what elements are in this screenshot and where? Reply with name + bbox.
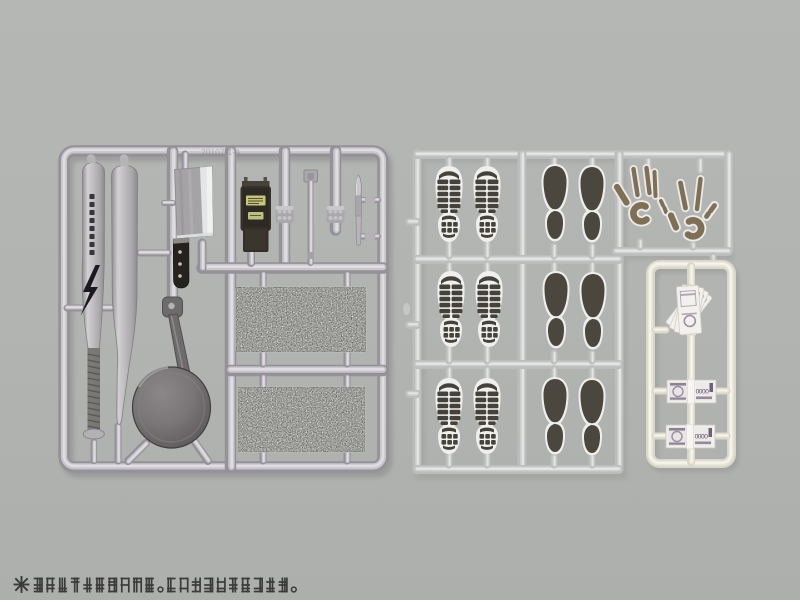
- svg-text:0000: 0000: [695, 434, 709, 441]
- svg-text:0000: 0000: [696, 389, 710, 396]
- svg-text:20107-1-A: 20107-1-A: [201, 147, 241, 157]
